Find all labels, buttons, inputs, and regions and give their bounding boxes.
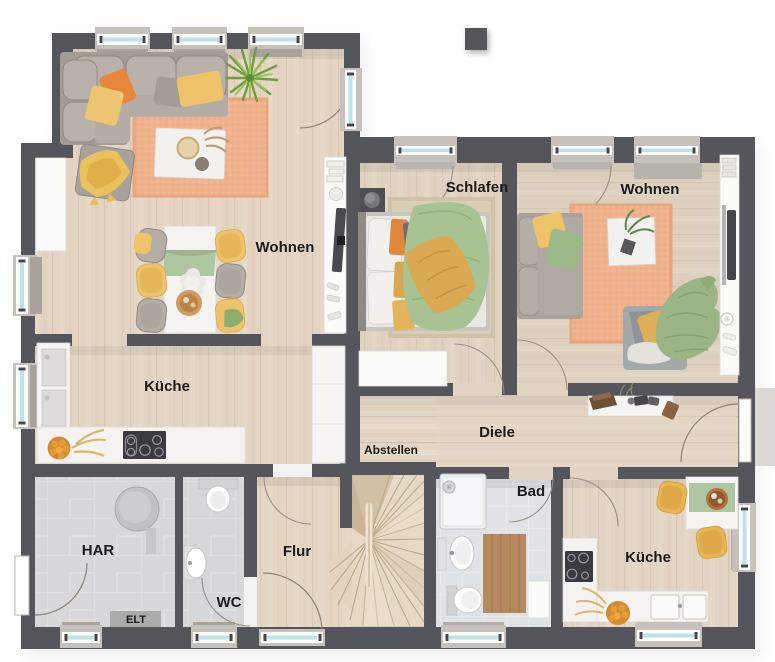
svg-text:Diele: Diele	[479, 424, 515, 441]
svg-text:Abstellen: Abstellen	[364, 443, 418, 457]
svg-text:Bad: Bad	[517, 483, 545, 500]
svg-text:Küche: Küche	[144, 378, 190, 395]
svg-text:Küche: Küche	[625, 549, 671, 566]
svg-text:Schlafen: Schlafen	[446, 179, 509, 196]
svg-text:HAR: HAR	[82, 542, 115, 559]
svg-text:Wohnen: Wohnen	[621, 181, 680, 198]
svg-text:ELT: ELT	[126, 614, 146, 626]
svg-text:WC: WC	[217, 594, 242, 611]
svg-text:Wohnen: Wohnen	[256, 239, 315, 256]
svg-text:Flur: Flur	[283, 543, 311, 560]
